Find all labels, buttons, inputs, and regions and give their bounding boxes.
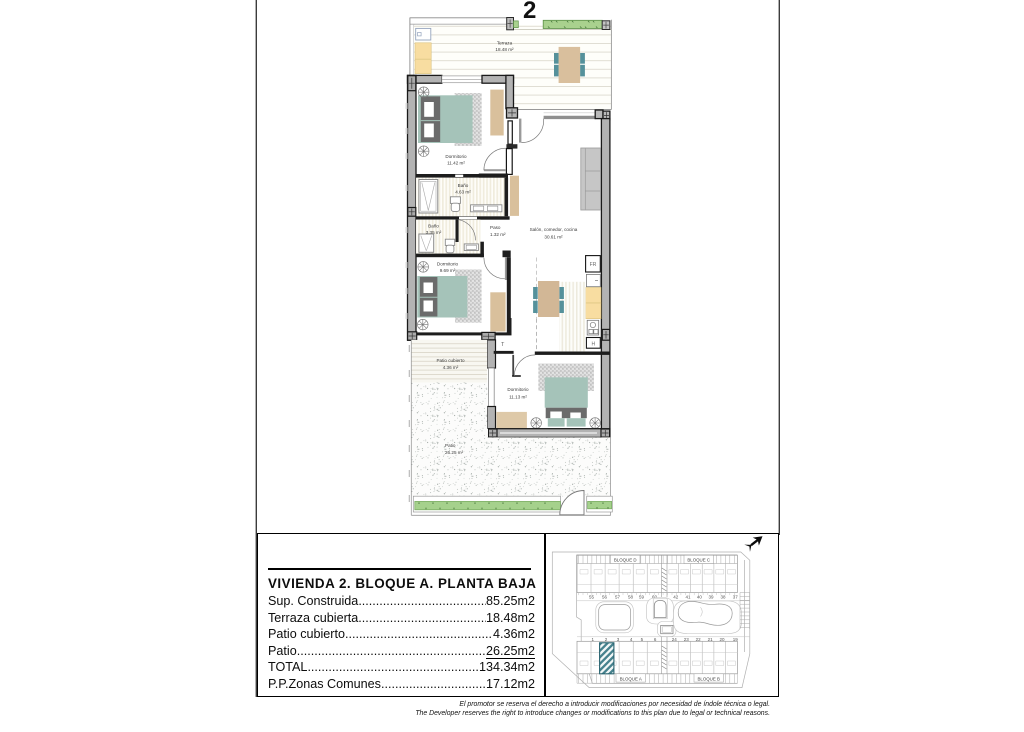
svg-text:Terraza: Terraza xyxy=(497,41,513,46)
svg-text:26.25 m²: 26.25 m² xyxy=(445,450,464,455)
svg-text:Salón, comedor, cocina: Salón, comedor, cocina xyxy=(530,227,578,232)
svg-text:Dormitorio: Dormitorio xyxy=(507,387,529,392)
svg-text:FR: FR xyxy=(590,262,597,268)
svg-text:Paso: Paso xyxy=(490,225,501,230)
svg-text:Patio: Patio xyxy=(445,443,456,448)
svg-text:11.42 m²: 11.42 m² xyxy=(447,161,465,166)
svg-text:Patio cubierto: Patio cubierto xyxy=(436,358,465,363)
svg-text:1.32 m²: 1.32 m² xyxy=(490,232,506,237)
svg-text:Dormitorio: Dormitorio xyxy=(445,154,467,159)
svg-text:3.35 m²: 3.35 m² xyxy=(426,230,442,235)
svg-text:30.61 m²: 30.61 m² xyxy=(544,234,563,239)
svg-text:9.69 m²: 9.69 m² xyxy=(440,268,456,273)
svg-text:Dormitorio: Dormitorio xyxy=(437,262,459,267)
svg-text:H: H xyxy=(591,341,595,347)
svg-text:18.48 m²: 18.48 m² xyxy=(495,47,514,52)
svg-text:4.63 m²: 4.63 m² xyxy=(455,189,471,194)
svg-text:Baño: Baño xyxy=(428,223,439,228)
svg-text:4.36 m²: 4.36 m² xyxy=(443,365,459,370)
svg-text:11.13 m²: 11.13 m² xyxy=(509,394,527,399)
svg-text:T: T xyxy=(501,342,505,348)
svg-text:Baño: Baño xyxy=(458,183,469,188)
